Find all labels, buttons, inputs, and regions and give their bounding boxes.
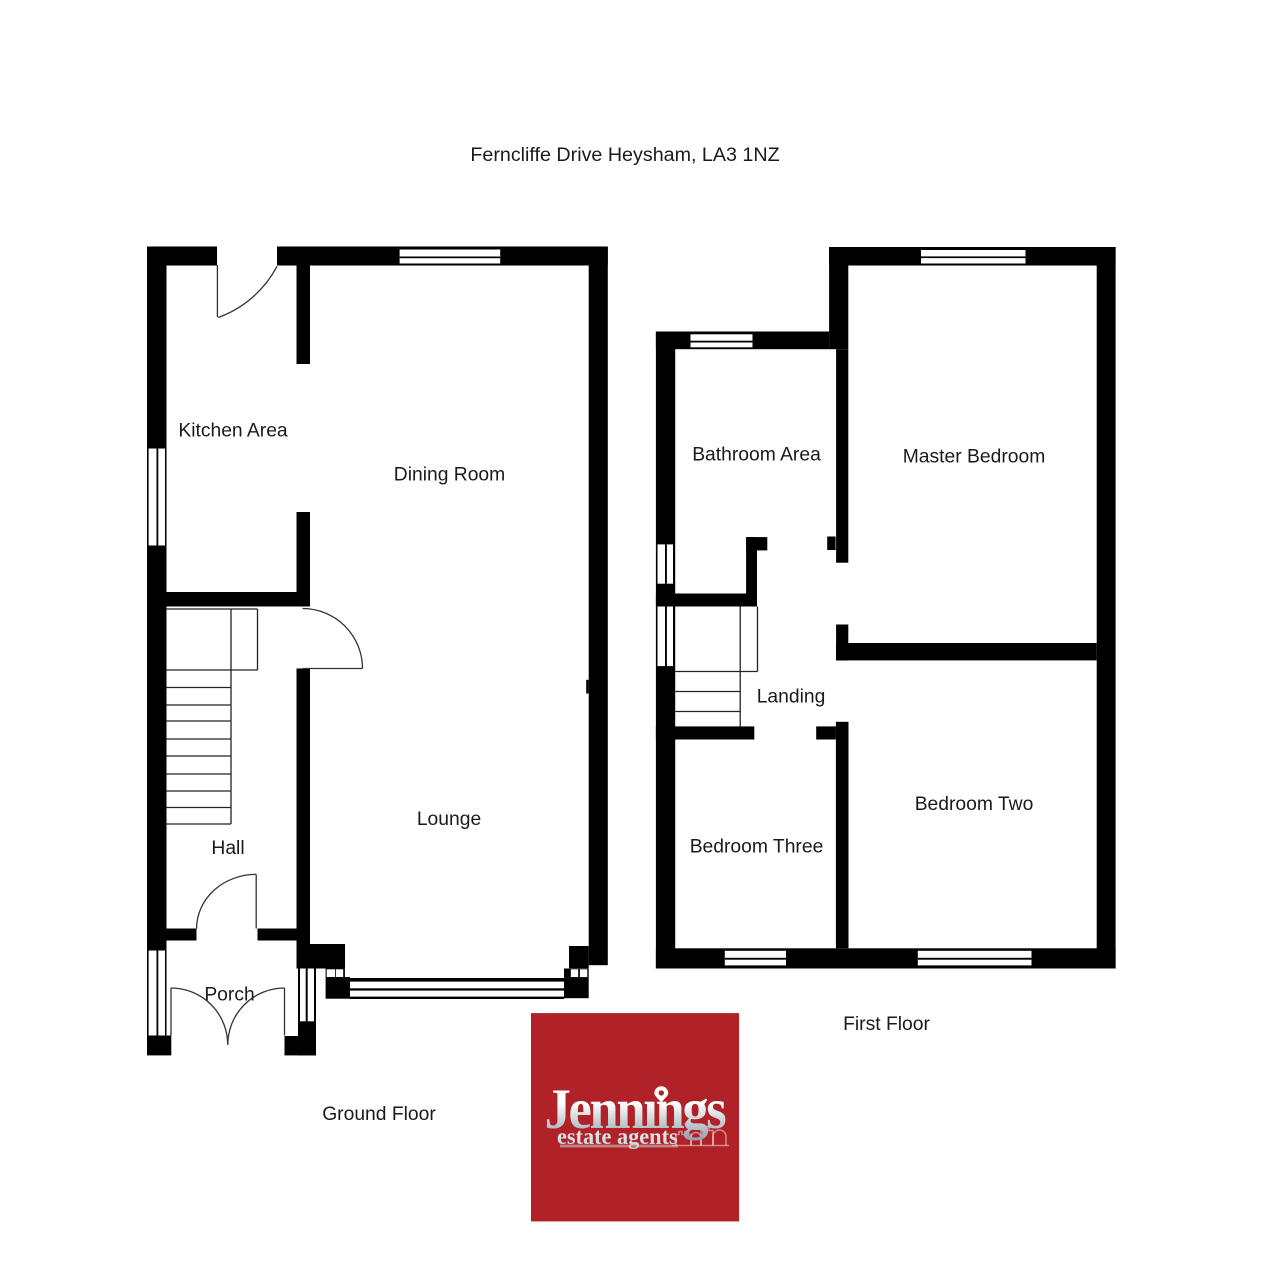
svg-text:Dining Room: Dining Room [394, 465, 505, 486]
svg-text:Ground Floor: Ground Floor [322, 1104, 436, 1125]
svg-text:Ferncliffe Drive Heysham, LA3: Ferncliffe Drive Heysham, LA3 1NZ [470, 144, 779, 166]
svg-text:Porch: Porch [204, 985, 254, 1006]
svg-text:Bathroom Area: Bathroom Area [692, 445, 821, 466]
svg-text:Landing: Landing [757, 687, 826, 708]
svg-text:Hall: Hall [211, 838, 244, 859]
svg-text:Lounge: Lounge [417, 809, 481, 830]
svg-text:First Floor: First Floor [843, 1014, 930, 1035]
svg-text:Bedroom Two: Bedroom Two [915, 794, 1034, 815]
svg-text:Master Bedroom: Master Bedroom [903, 447, 1046, 468]
svg-text:Bedroom Three: Bedroom Three [690, 837, 824, 858]
svg-text:Kitchen Area: Kitchen Area [178, 421, 288, 442]
